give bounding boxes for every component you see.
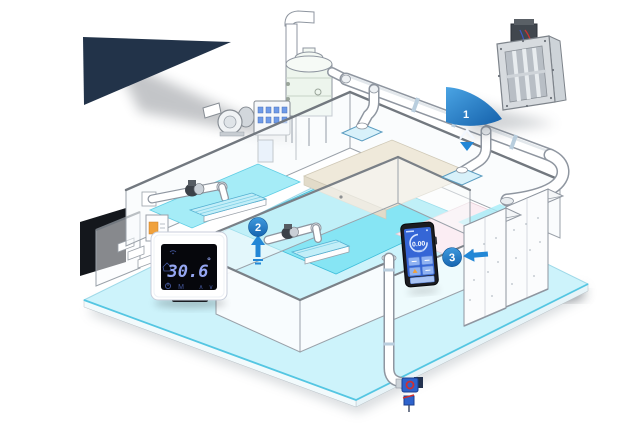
marker-1-label: 1	[463, 109, 469, 121]
up-button-label[interactable]: ∧	[199, 284, 204, 291]
thermostat-panel: 30.6 ° M ∧ ∨	[151, 232, 227, 308]
controller-reading: 0.00	[412, 240, 426, 248]
isometric-system-illustration: 30.6 ° M ∧ ∨ 0.00	[0, 0, 640, 425]
thermostat-degree: °	[206, 257, 211, 267]
marker-3-label: 3	[449, 252, 456, 264]
marker-2-label: 2	[255, 222, 261, 234]
mode-button-label[interactable]: M	[178, 284, 184, 291]
thermostat-reading: 30.6	[167, 262, 209, 282]
down-button-label[interactable]: ∨	[209, 284, 214, 291]
cabinet-duct-collar	[501, 198, 514, 205]
